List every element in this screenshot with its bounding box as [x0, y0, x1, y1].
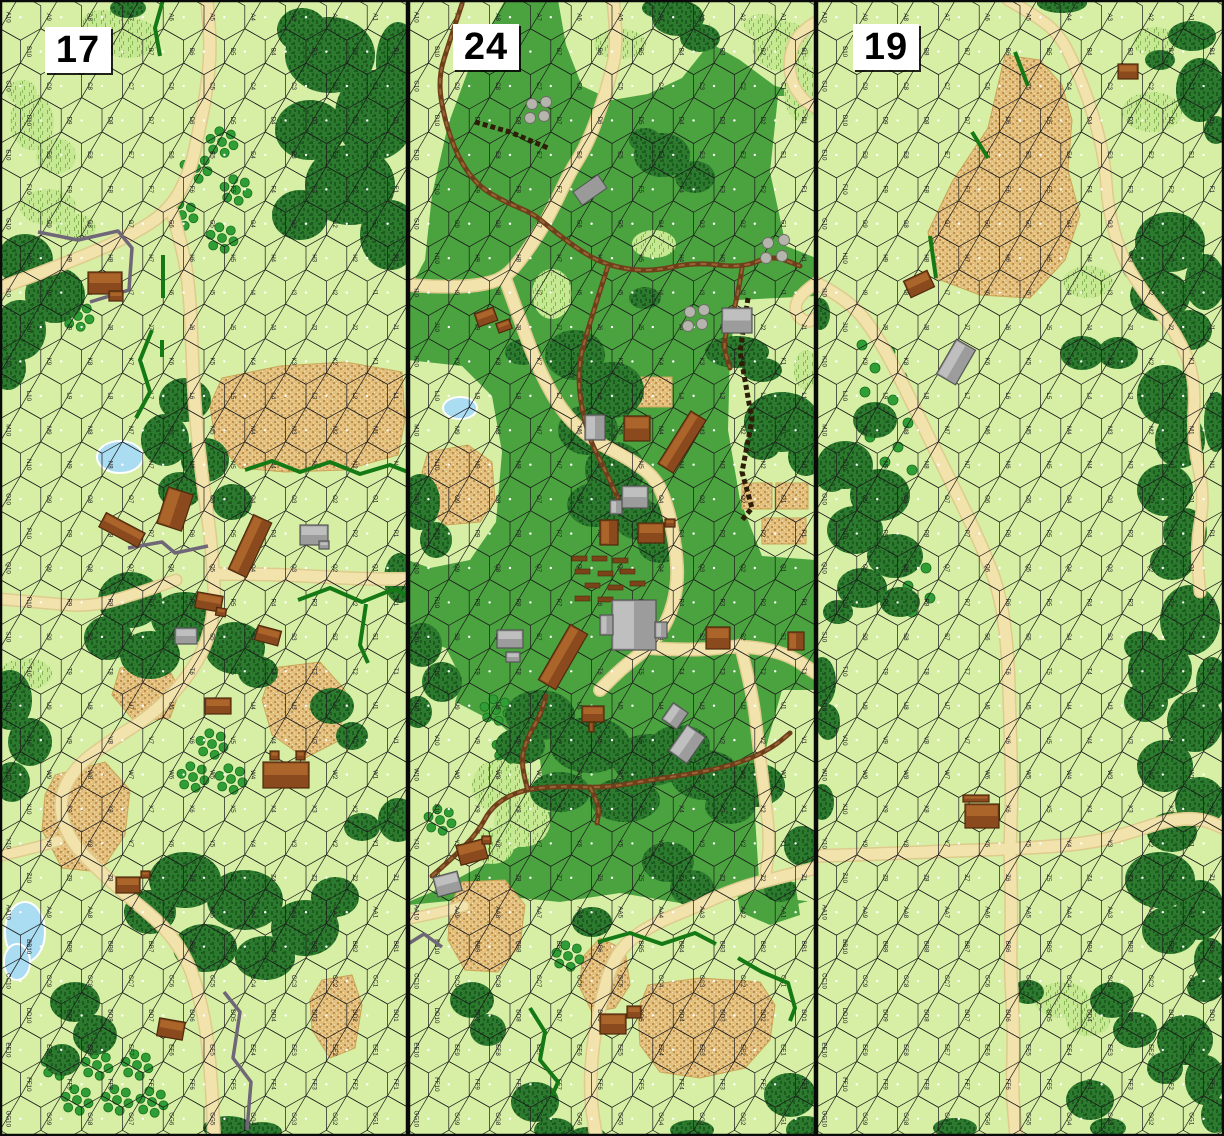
hex-coordinate-label: T6	[596, 668, 603, 676]
hex-center-dot	[40, 670, 42, 672]
hex-coordinate-label: M8	[86, 426, 93, 435]
hex-coordinate-label: B10	[433, 46, 440, 58]
hex-coordinate-label: R4	[270, 598, 277, 606]
hex-coordinate-label: DD8	[514, 1009, 521, 1022]
hex-coordinate-label: O8	[86, 495, 93, 504]
hex-coordinate-label: DD8	[922, 1009, 929, 1022]
hex-coordinate-label: V9	[66, 736, 73, 744]
hex-coordinate-label: V1	[392, 736, 399, 744]
hex-coordinate-label: G4	[1065, 220, 1072, 229]
orchard-tree	[572, 944, 581, 953]
hex-coordinate-label: C4	[657, 82, 664, 90]
hex-center-dot	[305, 360, 307, 362]
hex-coordinate-label: I3	[1106, 290, 1113, 296]
hex-center-dot	[917, 636, 919, 638]
hex-center-dot	[1121, 223, 1123, 225]
hex-center-dot	[1060, 257, 1062, 259]
hex-center-dot	[162, 188, 164, 190]
hex-coordinate-label: Z5	[637, 874, 644, 882]
hex-coordinate-label: X3	[718, 805, 725, 813]
woodpile	[608, 585, 623, 590]
hex-center-dot	[937, 1083, 939, 1085]
hex-center-dot	[733, 601, 735, 603]
hex-coordinate-label: FF4	[678, 1079, 685, 1091]
hex-coordinate-label: O7	[127, 495, 134, 504]
hex-coordinate-label: BB5	[229, 941, 236, 953]
hex-center-dot	[1182, 326, 1184, 328]
hex-coordinate-label: DD3	[310, 1009, 317, 1022]
hex-coordinate-label: BB1	[392, 941, 399, 953]
hex-center-dot	[284, 188, 286, 190]
hex-coordinate-label: K9	[861, 358, 868, 366]
hex-coordinate-label: FF2	[1167, 1079, 1174, 1091]
hex-coordinate-label: G8	[902, 220, 909, 229]
hex-coordinate-label: S5	[1024, 633, 1031, 641]
hex-center-dot	[509, 223, 511, 225]
hex-coordinate-label: I2	[1147, 290, 1154, 296]
hex-coordinate-label: R10	[25, 597, 32, 609]
hex-center-dot	[427, 567, 429, 569]
hex-coordinate-label: J3	[310, 324, 317, 331]
hex-center-dot	[1162, 1118, 1164, 1120]
hex-center-dot	[692, 1083, 694, 1085]
hex-center-dot	[876, 704, 878, 706]
hex-coordinate-label: Y2	[331, 840, 338, 848]
hex-center-dot	[611, 670, 613, 672]
hex-coordinate-label: T4	[678, 668, 685, 676]
hex-center-dot	[346, 636, 348, 638]
hex-center-dot	[774, 1014, 776, 1016]
hex-coordinate-label: E3	[698, 151, 705, 159]
hex-coordinate-label: G1	[1188, 220, 1195, 229]
hex-coordinate-label: Z2	[759, 874, 766, 882]
hex-coordinate-label: AA6	[168, 906, 175, 918]
hex-coordinate-label: E8	[902, 151, 909, 159]
hex-coordinate-label: FF6	[1004, 1079, 1011, 1091]
hex-coordinate-label: L2	[351, 392, 358, 399]
hex-coordinate-label: AA8	[86, 906, 93, 918]
hex-center-dot	[1202, 773, 1204, 775]
hex-coordinate-label: X6	[1004, 805, 1011, 813]
hex-coordinate-label: Z2	[351, 874, 358, 882]
hex-coordinate-label: B8	[922, 48, 929, 56]
hex-center-dot	[305, 429, 307, 431]
hex-coordinate-label: EE10	[4, 1042, 11, 1058]
hex-center-dot	[672, 1049, 674, 1051]
hex-coordinate-label: A3	[698, 13, 705, 21]
woods	[742, 358, 782, 382]
hex-center-dot	[672, 429, 674, 431]
hex-coordinate-label: BB8	[922, 941, 929, 953]
hex-center-dot	[733, 670, 735, 672]
hex-center-dot	[223, 429, 225, 431]
hex-coordinate-label: Q4	[1065, 564, 1072, 573]
hex-coordinate-label: B2	[759, 48, 766, 56]
hex-coordinate-label: W5	[616, 770, 623, 780]
hex-center-dot	[60, 16, 62, 18]
hex-center-dot	[386, 980, 388, 982]
hex-center-dot	[386, 223, 388, 225]
hex-coordinate-label: J4	[1086, 324, 1093, 331]
hex-center-dot	[917, 567, 919, 569]
hex-coordinate-label: FF8	[514, 1079, 521, 1091]
hex-center-dot	[448, 326, 450, 328]
orchard-tree	[226, 226, 235, 235]
hex-coordinate-label: GG6	[168, 1112, 175, 1126]
hex-coordinate-label: O9	[861, 495, 868, 504]
hex-coordinate-label: N2	[759, 461, 766, 469]
hex-coordinate-label: AA1	[780, 906, 787, 918]
orchard-tree	[427, 823, 436, 832]
hex-center-dot	[1080, 636, 1082, 638]
hex-coordinate-label: EE8	[494, 1044, 501, 1056]
hex-coordinate-label: S1	[372, 633, 379, 641]
hex-coordinate-label: L5	[229, 392, 236, 399]
hex-center-dot	[1121, 842, 1123, 844]
hex-center-dot	[80, 257, 82, 259]
hex-coordinate-label: M1	[1188, 426, 1195, 435]
hex-center-dot	[1060, 670, 1062, 672]
hex-center-dot	[1182, 50, 1184, 52]
hex-center-dot	[366, 1083, 368, 1085]
hex-coordinate-label: H4	[1086, 254, 1093, 262]
hex-center-dot	[529, 464, 531, 466]
hex-center-dot	[427, 1118, 429, 1120]
hex-coordinate-label: H7	[963, 254, 970, 262]
hex-coordinate-label: Y2	[739, 840, 746, 848]
hex-center-dot	[346, 498, 348, 500]
hex-center-dot	[244, 464, 246, 466]
hex-coordinate-label: CC5	[208, 975, 215, 988]
hex-center-dot	[550, 1118, 552, 1120]
hex-coordinate-label: Q3	[290, 564, 297, 573]
hex-center-dot	[958, 223, 960, 225]
hex-coordinate-label: C2	[739, 82, 746, 90]
hex-coordinate-label: G5	[1024, 220, 1031, 229]
hex-center-dot	[305, 911, 307, 913]
hex-center-dot	[509, 1049, 511, 1051]
hex-center-dot	[264, 291, 266, 293]
hex-center-dot	[998, 154, 1000, 156]
hex-coordinate-label: BB6	[1004, 941, 1011, 953]
wooden-building	[482, 836, 491, 844]
hex-coordinate-label: AA6	[984, 906, 991, 918]
hex-coordinate-label: F9	[882, 186, 889, 194]
hex-center-dot	[672, 842, 674, 844]
hex-center-dot	[203, 257, 205, 259]
hex-map-svg[interactable]: A10A9A8A7A6A5A4A3A2A1B10B9B8B7B6B5B4B3B2…	[0, 0, 1224, 1136]
hex-coordinate-label: X4	[1086, 805, 1093, 813]
hex-center-dot	[1121, 16, 1123, 18]
hex-coordinate-label: D1	[1208, 117, 1215, 125]
hex-center-dot	[896, 464, 898, 466]
hex-center-dot	[468, 85, 470, 87]
hex-center-dot	[427, 429, 429, 431]
hex-coordinate-label: FF4	[1086, 1079, 1093, 1091]
hex-coordinate-label: M10	[412, 424, 419, 437]
board-24[interactable]: A10A9A8A7A6A5A4A3A2A1B10B9B8B7B6B5B4B3B2…	[388, 0, 857, 1136]
hex-center-dot	[284, 326, 286, 328]
hex-center-dot	[142, 498, 144, 500]
hex-center-dot	[529, 601, 531, 603]
hex-coordinate-label: E2	[739, 151, 746, 159]
hex-center-dot	[713, 429, 715, 431]
hex-coordinate-label: H8	[514, 254, 521, 262]
hex-center-dot	[876, 429, 878, 431]
orchard-tree	[238, 778, 247, 787]
hex-center-dot	[1182, 670, 1184, 672]
hex-center-dot	[1019, 50, 1021, 52]
hex-center-dot	[19, 85, 21, 87]
hex-coordinate-label: T6	[188, 668, 195, 676]
hex-center-dot	[203, 1014, 205, 1016]
hex-coordinate-label: FF10	[25, 1077, 32, 1092]
hex-coordinate-label: C7	[943, 82, 950, 90]
hex-coordinate-label: CC5	[1024, 975, 1031, 988]
hex-coordinate-label: Z6	[596, 874, 603, 882]
hex-coordinate-label: A5	[1024, 13, 1031, 21]
hex-coordinate-label: R7	[963, 598, 970, 606]
hex-coordinate-label: N9	[882, 461, 889, 469]
hex-coordinate-label: FF8	[106, 1079, 113, 1091]
hex-center-dot	[162, 119, 164, 121]
hex-center-dot	[978, 670, 980, 672]
hex-coordinate-label: K4	[249, 358, 256, 366]
hex-center-dot	[1141, 257, 1143, 259]
board-17[interactable]: A10A9A8A7A6A5A4A3A2A1B10B9B8B7B6B5B4B3B2…	[0, 0, 449, 1136]
hex-center-dot	[998, 636, 1000, 638]
hex-center-dot	[896, 877, 898, 879]
hex-coordinate-label: GG2	[1147, 1112, 1154, 1126]
hex-coordinate-label: Z9	[66, 874, 73, 882]
hex-coordinate-label: X3	[310, 805, 317, 813]
hex-center-dot	[264, 223, 266, 225]
woodpile	[630, 581, 645, 586]
hex-coordinate-label: P7	[963, 530, 970, 538]
hex-coordinate-label: B2	[1167, 48, 1174, 56]
hex-coordinate-label: L8	[514, 392, 521, 399]
hex-center-dot	[835, 291, 837, 293]
hex-center-dot	[590, 360, 592, 362]
hex-coordinate-label: EE5	[616, 1044, 623, 1056]
board-19[interactable]: A10A9A8A7A6A5A4A3A2A1B10B9B8B7B6B5B4B3B2…	[775, 0, 1224, 1136]
orchard-tree	[189, 214, 198, 223]
hex-coordinate-label: B1	[1208, 48, 1215, 56]
hex-coordinate-label: EE9	[453, 1044, 460, 1056]
hex-coordinate-label: W7	[535, 770, 542, 780]
hex-center-dot	[468, 360, 470, 362]
hex-center-dot	[794, 911, 796, 913]
hex-center-dot	[305, 1118, 307, 1120]
hex-center-dot	[325, 50, 327, 52]
hex-center-dot	[1039, 360, 1041, 362]
hex-coordinate-label: BB2	[351, 941, 358, 953]
hex-center-dot	[244, 1014, 246, 1016]
hex-center-dot	[652, 670, 654, 672]
hex-coordinate-label: Q4	[657, 564, 664, 573]
hex-coordinate-label: Z1	[392, 874, 399, 882]
hex-coordinate-label: M2	[739, 426, 746, 435]
hex-center-dot	[366, 945, 368, 947]
hex-coordinate-label: X6	[188, 805, 195, 813]
hex-coordinate-label: H5	[229, 254, 236, 262]
hex-center-dot	[1080, 773, 1082, 775]
hex-coordinate-label: E3	[1106, 151, 1113, 159]
hex-coordinate-label: CC1	[372, 975, 379, 988]
hex-center-dot	[346, 85, 348, 87]
hex-coordinate-label: Z10	[841, 872, 848, 883]
hex-center-dot	[1141, 877, 1143, 879]
woods	[1185, 254, 1224, 310]
hex-center-dot	[264, 498, 266, 500]
hex-center-dot	[448, 532, 450, 534]
hex-coordinate-label: I9	[861, 290, 868, 296]
hex-center-dot	[998, 291, 1000, 293]
hex-center-dot	[80, 945, 82, 947]
hex-coordinate-label: P4	[270, 530, 277, 538]
hex-coordinate-label: Y4	[249, 840, 256, 848]
hex-coordinate-label: V10	[841, 735, 848, 747]
hex-coordinate-label: W7	[127, 770, 134, 780]
hex-coordinate-label: B5	[637, 48, 644, 56]
hex-coordinate-label: GG1	[372, 1112, 379, 1126]
hex-center-dot	[142, 704, 144, 706]
stone-building	[585, 415, 605, 440]
hex-coordinate-label: Q6	[984, 564, 991, 573]
hex-center-dot	[60, 911, 62, 913]
hex-coordinate-label: EE4	[249, 1044, 256, 1056]
hex-coordinate-label: CC8	[494, 975, 501, 988]
hex-center-dot	[488, 1083, 490, 1085]
hex-coordinate-label: C6	[576, 82, 583, 90]
hex-coordinate-label: G9	[45, 220, 52, 229]
hex-center-dot	[468, 1118, 470, 1120]
hex-coordinate-label: J3	[1126, 324, 1133, 331]
hex-coordinate-label: G4	[249, 220, 256, 229]
pond	[443, 397, 477, 419]
hex-center-dot	[529, 326, 531, 328]
hex-center-dot	[998, 842, 1000, 844]
hex-coordinate-label: BB10	[25, 939, 32, 955]
hex-coordinate-label: FF6	[188, 1079, 195, 1091]
hex-center-dot	[978, 1014, 980, 1016]
hex-center-dot	[366, 877, 368, 879]
hex-center-dot	[101, 498, 103, 500]
hex-center-dot	[1060, 808, 1062, 810]
hex-center-dot	[223, 154, 225, 156]
hex-center-dot	[713, 773, 715, 775]
hex-center-dot	[1100, 395, 1102, 397]
hex-center-dot	[162, 326, 164, 328]
hex-coordinate-label: F10	[25, 184, 32, 195]
hex-center-dot	[346, 360, 348, 362]
hex-coordinate-label: L8	[106, 392, 113, 399]
orchard-tree	[84, 1068, 93, 1077]
hex-center-dot	[672, 85, 674, 87]
hex-center-dot	[223, 16, 225, 18]
hex-coordinate-label: Z1	[800, 874, 807, 882]
hex-coordinate-label: X2	[351, 805, 358, 813]
orchard-tree	[555, 959, 564, 968]
boulder	[779, 235, 790, 246]
hex-center-dot	[19, 567, 21, 569]
hex-coordinate-label: J6	[188, 324, 195, 331]
hex-center-dot	[978, 119, 980, 121]
hex-center-dot	[264, 911, 266, 913]
hex-coordinate-label: CC6	[168, 975, 175, 988]
hex-center-dot	[1121, 567, 1123, 569]
hex-coordinate-label: D6	[1004, 117, 1011, 125]
hex-coordinate-label: N8	[106, 461, 113, 469]
hex-coordinate-label: X2	[759, 805, 766, 813]
hex-coordinate-label: S9	[453, 633, 460, 641]
hex-coordinate-label: L3	[718, 392, 725, 399]
hex-coordinate-label: R8	[106, 598, 113, 606]
hex-coordinate-label: W7	[943, 770, 950, 780]
hex-center-dot	[570, 326, 572, 328]
hex-coordinate-label: F6	[188, 186, 195, 194]
hex-center-dot	[182, 567, 184, 569]
woods	[1113, 1012, 1157, 1048]
hex-coordinate-label: Q10	[4, 562, 11, 574]
hex-coordinate-label: C2	[1147, 82, 1154, 90]
hex-coordinate-label: M9	[861, 426, 868, 435]
woodpile	[592, 556, 607, 561]
hex-center-dot	[611, 739, 613, 741]
hex-center-dot	[876, 567, 878, 569]
hex-center-dot	[937, 601, 939, 603]
hex-center-dot	[19, 911, 21, 913]
hex-coordinate-label: R2	[1167, 598, 1174, 606]
hex-coordinate-label: F4	[1086, 186, 1093, 194]
hex-center-dot	[692, 1014, 694, 1016]
tree	[921, 563, 931, 573]
hex-center-dot	[754, 980, 756, 982]
hex-coordinate-label: Q1	[1188, 564, 1195, 573]
hex-coordinate-label: L9	[66, 392, 73, 399]
hex-center-dot	[40, 1083, 42, 1085]
hex-center-dot	[958, 85, 960, 87]
hex-coordinate-label: L10	[433, 391, 440, 402]
hex-coordinate-label: B4	[1086, 48, 1093, 56]
hex-center-dot	[876, 636, 878, 638]
hex-center-dot	[468, 291, 470, 293]
hex-coordinate-label: GG5	[1024, 1112, 1031, 1126]
hex-coordinate-label: Z4	[1086, 874, 1093, 882]
hex-center-dot	[1141, 188, 1143, 190]
hex-center-dot	[284, 670, 286, 672]
hex-center-dot	[550, 154, 552, 156]
hex-center-dot	[488, 464, 490, 466]
hex-center-dot	[958, 429, 960, 431]
orchard-tree	[121, 1088, 130, 1097]
woods	[764, 1073, 816, 1117]
hex-center-dot	[529, 257, 531, 259]
hex-coordinate-label: S7	[127, 633, 134, 641]
hex-center-dot	[142, 636, 144, 638]
hex-center-dot	[1182, 464, 1184, 466]
hex-coordinate-label: CC8	[902, 975, 909, 988]
hex-coordinate-label: EE6	[576, 1044, 583, 1056]
hex-center-dot	[40, 50, 42, 52]
hex-coordinate-label: G3	[698, 220, 705, 229]
hex-center-dot	[448, 601, 450, 603]
hex-center-dot	[162, 1014, 164, 1016]
hex-coordinate-label: S2	[331, 633, 338, 641]
hex-coordinate-label: I9	[45, 290, 52, 296]
hex-center-dot	[386, 1118, 388, 1120]
hex-center-dot	[733, 1014, 735, 1016]
